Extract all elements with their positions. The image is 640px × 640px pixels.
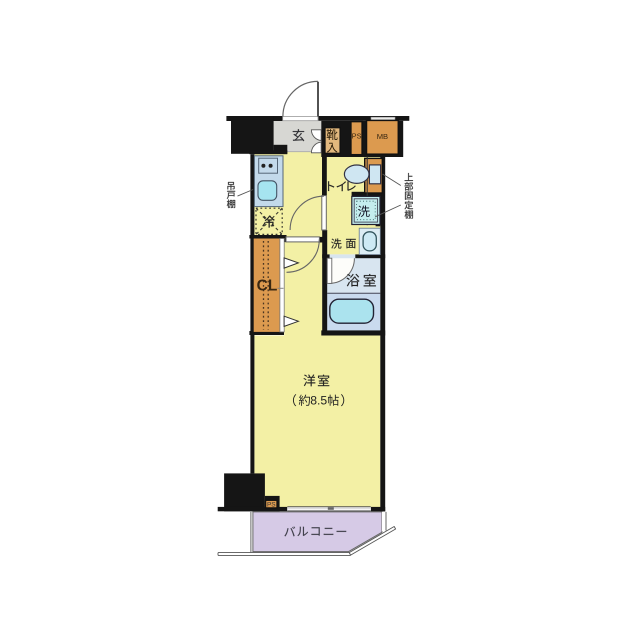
svg-text:PS: PS — [352, 132, 362, 141]
svg-text:PS: PS — [267, 501, 276, 508]
svg-text:CL: CL — [257, 278, 278, 295]
svg-text:MB: MB — [377, 132, 388, 141]
svg-text:8.5: 8.5 — [310, 393, 327, 407]
